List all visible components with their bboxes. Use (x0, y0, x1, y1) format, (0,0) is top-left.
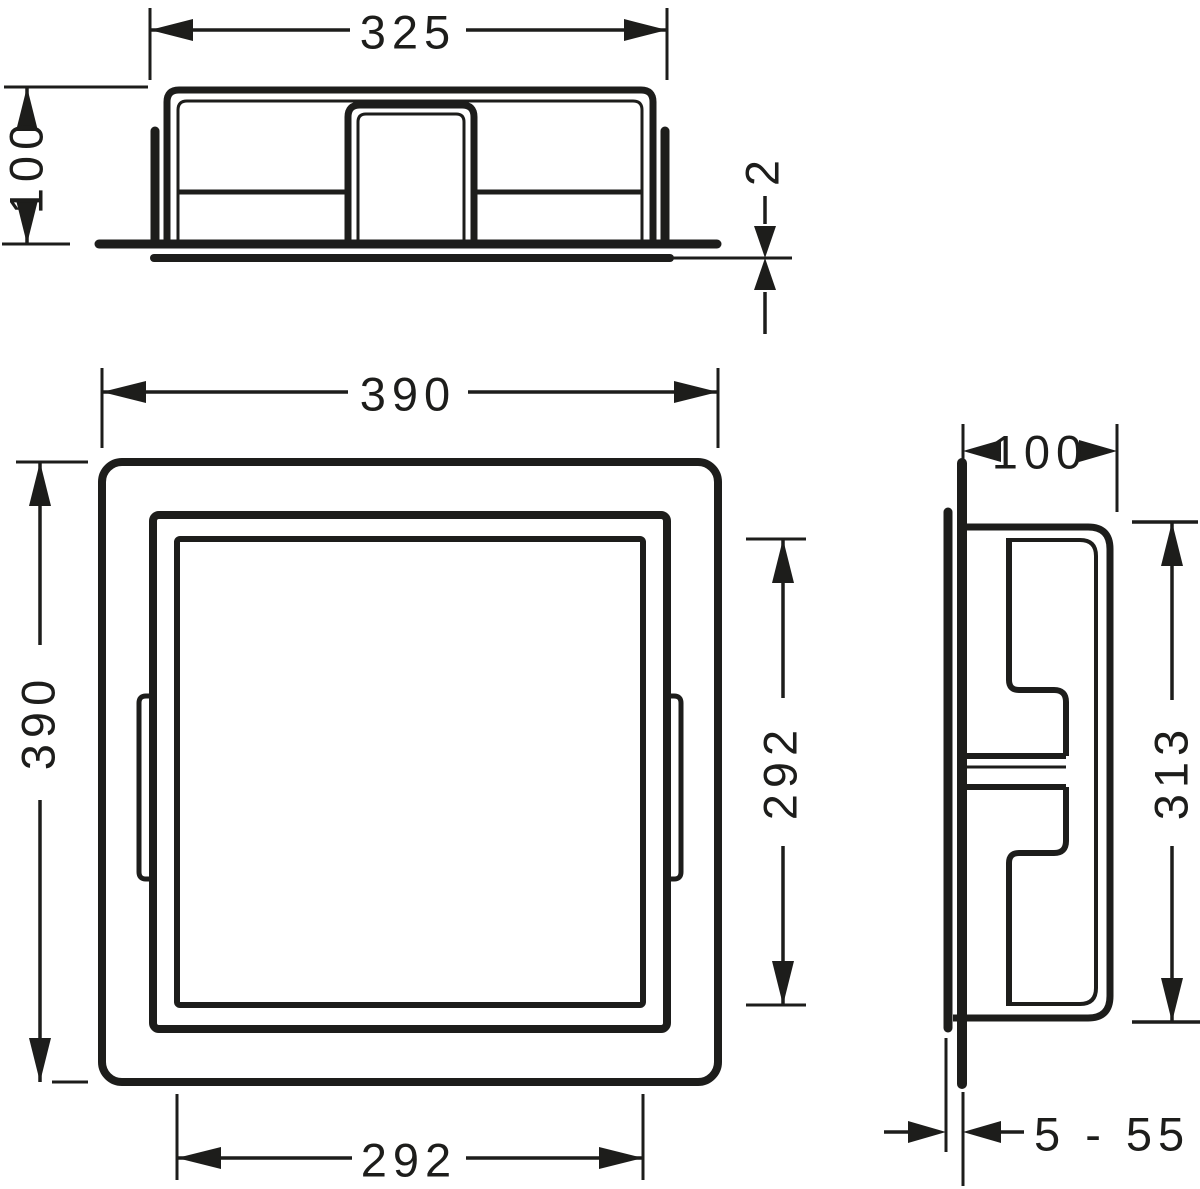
dimension-label-325: 325 (360, 6, 456, 59)
dimension-opening-height: 292 (746, 539, 807, 1005)
technical-drawing-canvas: 325 100 2 (0, 0, 1200, 1189)
arrowhead-inward-left (963, 1121, 1001, 1143)
arrowhead-down (1161, 978, 1183, 1022)
arrowhead-right (599, 1147, 643, 1169)
top-view: 325 100 2 (0, 6, 792, 335)
top-view-body-inner-wall (178, 101, 642, 246)
side-view: 100 313 5 - 55 (884, 424, 1200, 1186)
dimension-label-100: 100 (0, 118, 53, 214)
dimension-label-2: 2 (736, 154, 789, 186)
arrowhead-right (674, 381, 718, 403)
dimension-top-depth: 100 (0, 87, 148, 244)
dimension-label-292-height: 292 (754, 724, 807, 820)
arrowhead-up (754, 258, 776, 290)
top-view-center-tab-inner (358, 114, 464, 246)
arrowhead-right (624, 19, 667, 41)
dimension-label-390-width: 390 (360, 368, 456, 421)
arrowhead-up (772, 539, 794, 583)
dimensional-drawing: 325 100 2 (0, 0, 1200, 1189)
top-view-center-tab-outline (348, 105, 474, 246)
dimension-side-height: 313 (1132, 522, 1200, 1022)
dimension-label-5-55: 5 - 55 (1034, 1108, 1190, 1161)
front-view-outer-frame (102, 462, 718, 1082)
arrowhead-left (150, 19, 193, 41)
dimension-trim-thickness: 2 (736, 154, 789, 334)
arrowhead-down (754, 226, 776, 258)
dimension-side-depth: 100 (963, 424, 1117, 512)
front-view-body-edge (153, 515, 667, 1029)
dimension-label-292-width: 292 (361, 1134, 457, 1187)
dimension-front-height: 390 (12, 462, 89, 1082)
arrowhead-down (772, 961, 794, 1005)
arrowhead-up (29, 462, 51, 506)
front-view: 390 390 292 292 (12, 368, 807, 1187)
dimension-opening-width: 292 (177, 1094, 643, 1187)
dimension-label-313: 313 (1145, 724, 1198, 820)
side-view-tab-profile-bottom (1009, 787, 1066, 1002)
arrowhead-inward-right (908, 1121, 946, 1143)
dimension-front-width: 390 (102, 368, 718, 449)
arrowhead-left (102, 381, 146, 403)
side-view-tab-profile-top (1009, 542, 1066, 756)
dimension-top-width: 325 (150, 6, 667, 81)
front-view-opening (177, 539, 643, 1005)
dimension-label-100-depth: 100 (992, 426, 1088, 479)
arrowhead-left (177, 1147, 221, 1169)
arrowhead-down (29, 1038, 51, 1082)
dimension-label-390-height: 390 (12, 674, 65, 770)
arrowhead-up (1161, 522, 1183, 566)
side-view-body-outline (953, 527, 1110, 1018)
side-view-body-inner-wall (1006, 540, 1096, 1004)
dimension-tile-thickness-range: 5 - 55 (884, 1038, 1190, 1186)
